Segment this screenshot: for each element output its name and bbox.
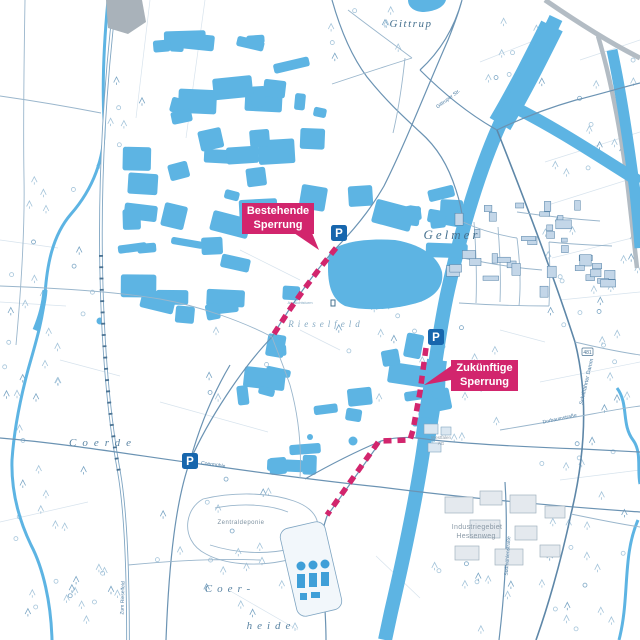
westfalen-ag-building [424,424,438,434]
water-basin [313,403,338,415]
tree-symbol [46,328,52,336]
tree-symbol [494,76,498,80]
future-closure-line1: Zukünftige [451,362,518,376]
tree-symbol [614,330,620,338]
water-basin [223,189,240,202]
tree-symbol [462,581,468,589]
tree-symbol [108,118,114,126]
water-basin [201,237,223,255]
water-basin [251,86,266,108]
tree-symbol [494,417,500,425]
tree-symbol [17,425,23,433]
building [562,246,569,253]
tree-symbol [609,617,615,625]
tree-symbol [478,626,484,634]
tree-symbol [108,586,114,594]
tree-symbol [32,275,38,283]
tree-symbol [540,462,544,466]
water-basin [197,127,225,152]
tree-symbol [597,309,601,313]
tree-symbol [396,314,400,318]
tree-symbol [501,18,507,26]
water-basin [167,160,191,181]
water-basin [273,56,311,74]
tree-symbol [42,361,48,369]
tree-symbol [69,585,75,593]
water-basin [289,443,321,455]
tree-symbol [81,312,85,316]
aa-stream [12,0,108,640]
tree-symbol [565,602,571,610]
tree-symbol [53,521,59,529]
tree-symbol [507,72,511,76]
tree-symbol [71,187,75,191]
tree-symbol [72,587,78,595]
tree-symbol [459,433,465,441]
tree-symbol [205,500,209,504]
tree-symbol [32,177,38,185]
plant-tank [297,562,306,571]
building [561,238,567,242]
tree-symbol [215,505,221,513]
road-number-text: 481 [583,350,592,356]
tree-symbol [378,329,384,337]
building [575,201,581,211]
tree-symbol [485,576,491,584]
street-label-dorbaumstrasse: Dorbaumstraße [542,412,577,425]
stauteich-pond [328,240,442,310]
tree-symbol [33,394,39,402]
tree-symbol [81,467,87,475]
street-label-gittruper-str: Gittruper Str. [435,88,461,110]
tree-symbol [607,373,613,381]
tree-symbol [32,240,36,244]
tree-symbol [10,273,14,277]
tree-symbol [587,126,593,134]
parking-marker: P [331,225,347,241]
tree-symbol [27,201,33,209]
place-label-rieselfeld: Rieselfeld [287,319,364,329]
building [575,265,584,270]
parking-letter: P [186,456,194,468]
building [547,225,553,231]
tree-symbol [117,106,121,110]
tree-symbol [388,7,394,15]
plant-tank [309,561,318,570]
tree-symbol [589,437,595,445]
tree-symbol [160,511,166,519]
building [556,220,572,229]
stream-east [617,388,640,484]
water-basin [300,128,326,150]
tree-symbol [43,491,49,499]
industrial-building [515,526,537,540]
sewage-plant [278,520,343,618]
building [516,203,524,208]
tree-symbol [8,308,14,316]
water-basin [381,348,401,367]
tree-symbol [548,308,554,316]
plant-tank [311,592,320,598]
tree-symbol [4,391,10,399]
building [450,265,462,273]
parking-marker: P [182,453,198,469]
industrial-building [445,497,473,513]
topographic-map: GittrupGelmerCoerdeRieselfeldZentraldepo… [0,0,640,640]
tree-symbol [391,335,397,343]
tree-symbol [584,552,590,560]
tree-symbol [14,390,20,398]
tree-symbol [55,343,61,351]
tree-symbol [36,466,42,474]
tree-symbol [257,543,263,551]
tree-symbol [550,518,556,526]
tree-symbol [139,98,145,106]
building [470,258,481,265]
water-basin [153,39,171,52]
tree-symbol [332,53,338,61]
water-basin [127,172,158,195]
tree-symbol [553,607,557,611]
tree-symbol [437,569,441,573]
industrial-building [455,546,479,560]
water-basin [212,75,253,100]
tree-symbol [586,166,590,170]
parking-marker: P [428,329,444,345]
tree-symbol [79,601,85,609]
existing-closure-line1: Bestehende [242,205,314,219]
water-basin [226,146,259,165]
water-basin [205,303,222,321]
tree-symbol [539,580,545,588]
tree-symbol [621,256,627,264]
tree-symbol [224,477,228,481]
lookout-tower-symbol [331,300,335,306]
ems-river [612,50,640,248]
tree-symbol [353,9,357,13]
tree-symbol [117,143,121,147]
tree-symbol [7,340,11,344]
tree-symbol [624,392,630,400]
tree-symbol [34,605,38,609]
building [540,286,548,297]
tree-symbol [451,434,457,442]
water-basin [160,202,188,231]
water-basin [181,33,215,52]
tree-symbol [230,529,234,533]
tree-symbol [492,347,498,355]
tree-symbol [553,161,559,169]
tree-symbol [220,567,226,575]
street-label-zum-rieselfeld: Zum Rieselfeld [119,581,126,615]
tree-symbol [208,390,212,394]
stream-southeast [619,520,638,640]
building [489,212,496,221]
tree-symbol [347,349,351,353]
tree-symbol [589,122,593,126]
building [521,236,535,240]
gray-building [106,0,146,34]
water-basin [122,209,141,230]
tree-symbol [76,247,82,255]
aa-stream-widening [35,290,45,330]
building [484,205,492,211]
water-basin [245,167,267,188]
tree-symbol [464,562,468,566]
water-basin [171,237,204,250]
tree-symbol [628,254,634,262]
building [605,270,615,279]
tree-symbol [486,75,492,83]
tree-symbol [330,41,334,45]
gray-road [545,0,640,58]
place-label-westfalen-ag-1: Westfalen [431,435,451,440]
tree-symbol [236,549,242,557]
tree-symbol [30,590,36,598]
tree-symbol [114,77,120,85]
tree-symbol [621,551,625,555]
water-basin [348,185,374,207]
place-label-industriegebiet: Industriegebiet [452,524,502,531]
tree-symbol [578,311,582,315]
tree-symbol [511,51,515,55]
small-pond [307,434,313,440]
tree-symbol [43,206,49,214]
tree-symbol [92,600,96,604]
building [580,255,591,266]
industrial-building [480,491,502,505]
tree-symbol [584,522,590,530]
tree-symbol [599,492,605,500]
road-casing [101,0,128,640]
water-basin [403,332,425,359]
water-basin [347,387,373,407]
tree-symbol [73,577,79,585]
tree-symbol [250,609,256,617]
building [547,232,555,239]
gittrup-pond [408,0,446,12]
place-label-gittrup: Gittrup [390,18,433,30]
place-label-heide: heide [247,620,296,632]
tree-symbol [96,564,102,572]
plant-tank [321,560,330,569]
tree-symbol [20,480,26,488]
street-label-coermuehle: Coermühle [201,460,226,469]
tree-symbol [613,360,617,364]
tree-symbol [564,169,570,177]
industrial-building [540,545,560,557]
industrial-building [510,495,536,513]
water-basin [122,147,151,171]
place-label-westfalen-ag-2: AG [438,441,445,446]
tree-symbol [505,591,511,599]
tree-symbol [432,562,438,570]
tree-symbol [279,581,285,589]
tree-symbol [593,81,599,89]
tree-symbol [238,601,244,609]
tree-symbol [3,365,7,369]
tree-symbol [206,372,212,380]
existing-closure-callout: Bestehende Sperrung [242,203,314,234]
building [592,264,601,269]
tree-symbol [215,394,221,402]
building [547,266,556,277]
building [600,280,615,287]
tree-symbol [265,362,269,366]
tree-symbol [41,189,47,197]
place-label-coer: Coer- [205,583,255,595]
tree-symbol [25,609,31,617]
tree-symbol [598,607,604,615]
water-basin [345,408,363,423]
place-label-coerde: Coerde [69,437,137,449]
tree-symbol [575,442,579,446]
tree-symbol [591,286,597,294]
tree-symbol [631,58,635,62]
tree-symbol [563,463,569,471]
tree-symbol [595,564,601,572]
tree-symbol [564,615,570,623]
building [591,270,602,277]
parking-letter: P [432,332,440,344]
tree-symbol [260,489,266,497]
plant-tank [321,572,329,586]
industrial-building [545,506,565,518]
map-canvas[interactable]: GittrupGelmerCoerdeRieselfeldZentraldepo… [0,0,640,640]
place-label-zentraldeponie: Zentraldeponie [217,520,264,526]
tree-symbol [508,581,514,589]
tree-symbol [569,545,573,549]
tree-symbol [459,326,463,330]
tree-symbol [62,523,68,531]
water-basin [302,455,317,475]
water-basin [426,243,468,259]
tree-symbol [376,394,382,402]
tree-symbol [558,275,562,279]
small-pond [349,437,358,446]
place-label-gelmer: Gelmer [424,227,481,242]
future-closure-line2: Sperrung [451,376,518,390]
tree-symbol [562,323,566,327]
building [540,212,550,216]
tree-symbol [54,579,58,583]
building [544,201,550,211]
water-basin [294,93,306,111]
westfalen-ag-building [441,427,451,435]
tree-symbol [598,297,604,305]
tree-symbol [213,327,219,335]
place-label-hessenweg-area: Hessenweg [456,533,495,540]
tree-symbol [68,594,72,598]
water-basin [236,385,249,406]
future-closure-callout: Zukünftige Sperrung [451,360,518,391]
water-basin [249,129,270,148]
plant-tank [309,573,317,587]
building [455,213,463,225]
building [497,257,510,262]
building [483,276,499,280]
tree-symbol [614,395,620,403]
water-basin [137,243,157,254]
building [512,264,521,276]
water-basin [313,106,328,118]
parking-letter: P [335,228,343,240]
tree-symbol [84,616,90,624]
plant-tank [297,574,305,588]
building [492,254,497,264]
tree-symbol [413,329,417,333]
tree-symbol [22,300,28,308]
tree-symbol [177,547,183,555]
tree-symbol [583,583,587,587]
tree-symbol [539,78,545,86]
building [462,251,475,259]
plant-tank [300,593,307,600]
water-basin [175,305,195,324]
tree-symbol [72,264,76,268]
tree-symbol [328,24,334,32]
water-basin [220,253,251,273]
tree-symbol [14,537,18,541]
tree-symbol [574,627,578,631]
existing-closure-line2: Sperrung [242,219,314,233]
tree-symbol [155,558,159,562]
water-basin [262,79,286,99]
tree-symbol [121,121,127,129]
tree-symbol [462,393,468,401]
existing-closure-route-pointer [294,233,319,250]
tree-symbol [560,279,564,283]
water-basin [269,457,288,475]
